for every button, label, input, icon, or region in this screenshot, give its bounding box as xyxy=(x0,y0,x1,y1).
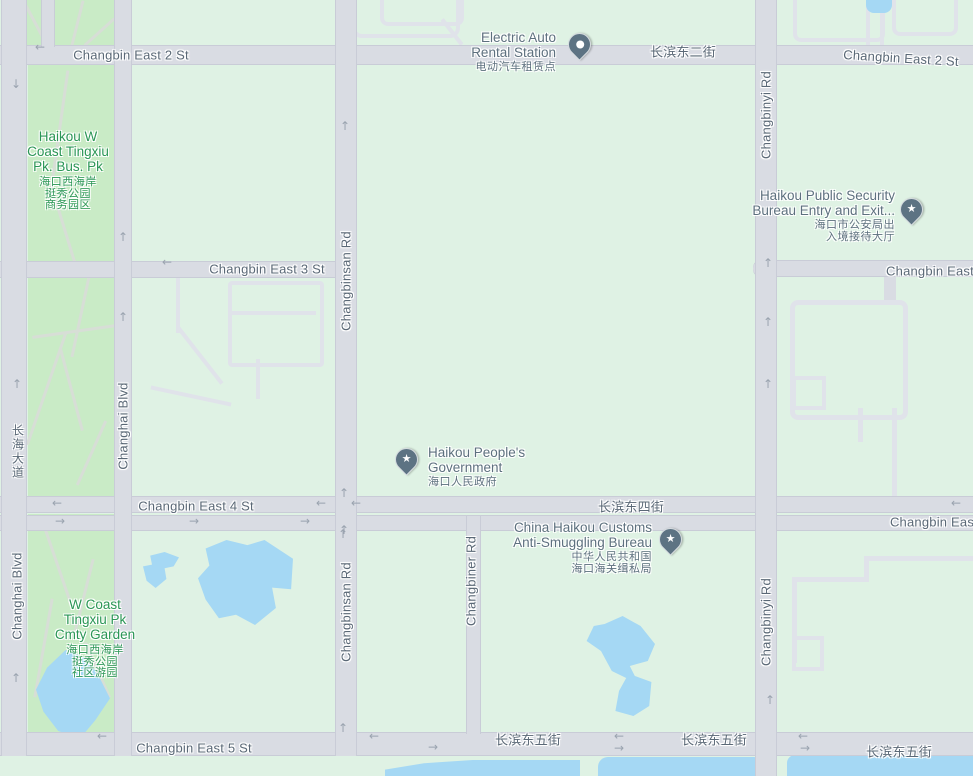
street-label-changbin-east-3: Changbin East 3 St xyxy=(209,262,325,277)
one-way-arrow-icon: ↑ xyxy=(12,377,22,391)
street-label-changbinyi-rd-1: Changbinyi Rd xyxy=(759,71,774,159)
street-label-changbinyi-rd-2: Changbinyi Rd xyxy=(759,578,774,666)
minor-road xyxy=(892,408,897,498)
poi-label-customs-anti-smuggling[interactable]: China Haikou Customs Anti-Smuggling Bure… xyxy=(513,521,652,575)
one-way-arrow-icon: ← xyxy=(316,496,326,510)
park-name: W Coast Tingxiu Pk Cmty Garden xyxy=(35,597,155,642)
map-pin-public-security-bureau[interactable]: ★ xyxy=(895,193,928,226)
minor-road xyxy=(150,386,231,407)
street-label-changbin-east-5: Changbin East 5 St xyxy=(136,741,252,756)
poi-name: Haikou Public Security Bureau Entry and … xyxy=(752,189,895,218)
pond xyxy=(143,552,179,588)
street-label-changhai-blvd-cn: 长海大道 xyxy=(10,424,27,480)
one-way-arrow-icon: ↑ xyxy=(339,486,349,500)
poi-label-peoples-government[interactable]: Haikou People's Government 海口人民政府 xyxy=(428,446,525,488)
minor-road xyxy=(176,326,223,385)
one-way-arrow-icon: ↑ xyxy=(763,256,773,270)
park-name-cn: 海口西海岸 挺秀公园 社区游园 xyxy=(35,645,155,680)
minor-road xyxy=(858,408,863,442)
pond xyxy=(583,616,655,716)
waterfront xyxy=(385,760,580,776)
one-way-arrow-icon: ↑ xyxy=(339,523,349,537)
dot-pin-icon xyxy=(576,41,584,49)
street-label-changbiner-rd: Changbiner Rd xyxy=(464,536,479,626)
poi-name: China Haikou Customs Anti-Smuggling Bure… xyxy=(513,521,652,550)
street-label-changbinsan-rd-1: Changbinsan Rd xyxy=(339,231,354,331)
one-way-arrow-icon: ← xyxy=(369,729,379,743)
poi-label-electric-auto-rental[interactable]: Electric Auto Rental Station 电动汽车租赁点 xyxy=(471,31,556,73)
one-way-arrow-icon: ↑ xyxy=(765,693,775,707)
park-name: Haikou W Coast Tingxiu Pk. Bus. Pk xyxy=(8,129,128,174)
road-changbin-east-4-south xyxy=(0,516,973,530)
one-way-arrow-icon: ← xyxy=(52,496,62,510)
street-label-changbin-east-5-cn-2: 长滨东五街 xyxy=(681,730,747,749)
one-way-arrow-icon: ← xyxy=(97,729,107,743)
poi-name: Electric Auto Rental Station xyxy=(471,31,556,60)
one-way-arrow-icon: ↑ xyxy=(338,721,348,735)
one-way-arrow-icon: → xyxy=(300,514,310,528)
waterfront xyxy=(598,757,756,776)
minor-road xyxy=(792,636,824,671)
street-label-changbin-east-5-cn-1: 长滨东五街 xyxy=(495,730,561,749)
minor-road xyxy=(176,277,180,333)
street-label-changbin-east-4-right: Changbin Eas xyxy=(890,515,973,530)
park-name-cn: 海口西海岸 挺秀公园 商务园区 xyxy=(8,177,128,212)
one-way-arrow-icon: ↑ xyxy=(118,310,128,324)
star-pin-icon: ★ xyxy=(901,199,922,220)
street-label-changbinsan-rd-2: Changbinsan Rd xyxy=(339,562,354,662)
pond xyxy=(866,0,892,13)
minor-road xyxy=(792,577,868,582)
minor-road xyxy=(380,0,464,26)
poi-label-public-security-bureau[interactable]: Haikou Public Security Bureau Entry and … xyxy=(752,189,895,243)
one-way-arrow-icon: ← xyxy=(162,255,172,269)
street-label-changbin-east-4-cn: 长滨东四街 xyxy=(598,497,664,516)
map-pin-peoples-government[interactable]: ★ xyxy=(390,443,423,476)
one-way-arrow-icon: ↑ xyxy=(11,671,21,685)
one-way-arrow-icon: → xyxy=(614,741,624,755)
one-way-arrow-icon: ↑ xyxy=(763,377,773,391)
minor-road xyxy=(230,311,316,315)
one-way-arrow-icon: → xyxy=(189,514,199,528)
pond xyxy=(198,540,293,625)
poi-name-cn: 电动汽车租赁点 xyxy=(471,61,556,73)
street-label-changbin-east-2: Changbin East 2 St xyxy=(73,48,189,63)
minor-road xyxy=(864,559,869,582)
street-label-changbin-east-5-cn-3: 长滨东五街 xyxy=(866,742,932,761)
star-pin-icon: ★ xyxy=(660,529,681,550)
one-way-arrow-icon: ← xyxy=(35,40,45,54)
one-way-arrow-icon: ↓ xyxy=(11,77,21,91)
one-way-arrow-icon: → xyxy=(800,741,810,755)
poi-name-cn: 中华人民共和国 海口海关缉私局 xyxy=(513,551,652,575)
park-label-tingxiu-business-park: Haikou W Coast Tingxiu Pk. Bus. Pk 海口西海岸… xyxy=(8,129,128,212)
one-way-arrow-icon: ↑ xyxy=(763,315,773,329)
one-way-arrow-icon: ← xyxy=(951,496,961,510)
poi-name-cn: 海口人民政府 xyxy=(428,476,525,488)
minor-road xyxy=(792,376,826,410)
street-label-changhai-blvd-2: Changhai Blvd xyxy=(10,552,25,639)
minor-road xyxy=(228,281,324,367)
one-way-arrow-icon: → xyxy=(55,514,65,528)
star-pin-icon: ★ xyxy=(396,449,417,470)
one-way-arrow-icon: → xyxy=(428,740,438,754)
minor-road xyxy=(892,0,958,36)
poi-name-cn: 海口市公安局出 入境接待大厅 xyxy=(752,219,895,243)
poi-name: Haikou People's Government xyxy=(428,446,525,475)
street-label-changbin-east-3-right: Changbin East xyxy=(886,264,973,279)
street-label-changbin-east-4: Changbin East 4 St xyxy=(138,499,254,514)
minor-road xyxy=(256,359,260,399)
one-way-arrow-icon: ← xyxy=(351,496,361,510)
one-way-arrow-icon: ↑ xyxy=(118,230,128,244)
map-canvas[interactable]: Changbin East 2 St 长滨东二街 Changbin East 2… xyxy=(0,0,973,776)
street-label-changhai-blvd-1: Changhai Blvd xyxy=(116,382,131,469)
one-way-arrow-icon: ↑ xyxy=(340,119,350,133)
park-label-cmty-garden: W Coast Tingxiu Pk Cmty Garden 海口西海岸 挺秀公… xyxy=(35,597,155,680)
street-label-changbin-east-2-cn: 长滨东二街 xyxy=(650,42,716,61)
minor-road xyxy=(864,556,973,561)
